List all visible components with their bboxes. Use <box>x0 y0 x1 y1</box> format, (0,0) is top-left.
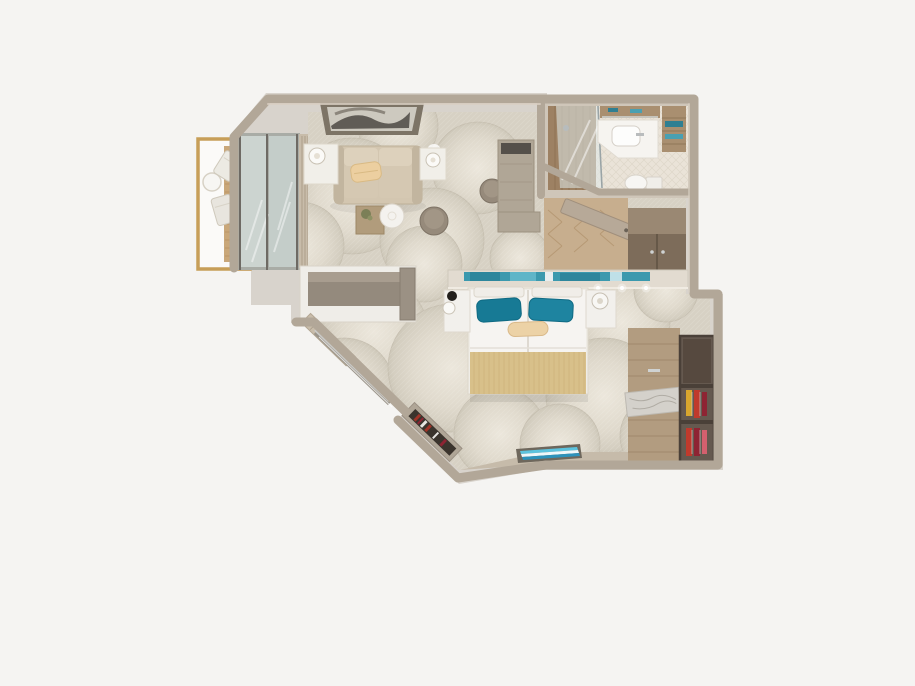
gold-bed-runner <box>470 352 586 394</box>
floorplan-canvas <box>0 0 915 686</box>
flat-tv <box>501 143 531 154</box>
shoe-rack <box>680 336 714 464</box>
side-table-left <box>304 144 338 184</box>
headboard-left <box>474 287 524 297</box>
glass-balcony-doors <box>238 133 300 270</box>
wardrobe-handle <box>648 369 660 372</box>
bolster-pillow <box>508 321 548 336</box>
entry-corridor <box>544 198 686 272</box>
double-bed <box>468 287 588 394</box>
tv-dresser-unit <box>498 140 540 232</box>
wood-cube-coffee-table <box>356 206 384 234</box>
headboard-art <box>464 272 650 281</box>
abstract-wall-art <box>320 103 424 135</box>
cream-throw-pillow <box>350 161 382 183</box>
ottoman-pouf <box>420 207 448 235</box>
bathroom <box>541 100 694 198</box>
headboard-right <box>532 287 582 297</box>
sliding-door-wardrobe <box>628 208 686 272</box>
teal-pillow-left <box>476 297 521 322</box>
bed-shadow <box>470 394 588 402</box>
sofa <box>334 146 422 204</box>
nightstand-right <box>586 290 616 328</box>
faucet <box>636 133 644 136</box>
suite-floorplan-render <box>0 0 915 686</box>
closet-area <box>625 328 714 464</box>
towel-shelf <box>662 106 686 152</box>
bath-top-shelf <box>600 106 660 118</box>
teal-pillow-right <box>528 298 573 322</box>
marble-inlay <box>625 387 681 417</box>
shower-head <box>563 125 569 131</box>
divider-console <box>300 266 416 322</box>
round-coffee-table <box>380 204 404 228</box>
closet-wardrobe <box>625 328 681 462</box>
bedside-lamp-left <box>447 291 457 301</box>
side-table-right <box>420 148 446 180</box>
shoes-bottom-shelf <box>686 428 707 456</box>
nightstand-left <box>443 290 470 332</box>
shoes-middle-shelf <box>686 390 707 418</box>
